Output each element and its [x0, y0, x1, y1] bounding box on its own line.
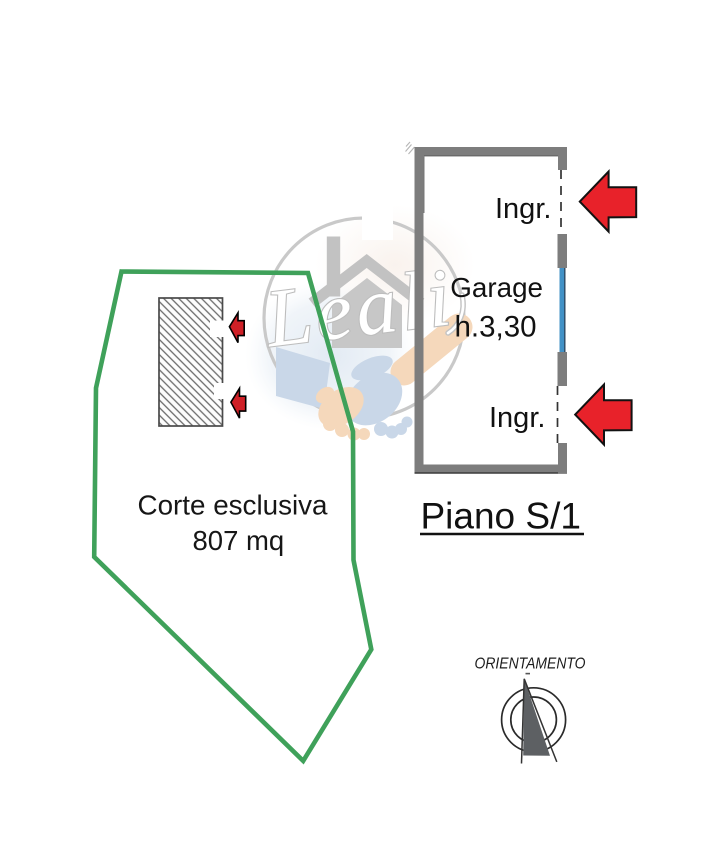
svg-text:Corte esclusiva: Corte esclusiva [138, 490, 329, 521]
svg-text:Garage: Garage [450, 272, 543, 303]
svg-text:h.3,30: h.3,30 [455, 310, 537, 343]
svg-text:Ingr.: Ingr. [489, 402, 545, 434]
svg-text:807 mq: 807 mq [193, 525, 285, 556]
svg-text:Ingr.: Ingr. [495, 193, 551, 225]
svg-text:Piano S/1: Piano S/1 [421, 496, 581, 537]
svg-text:ORIENTAMENTO: ORIENTAMENTO [475, 655, 586, 672]
